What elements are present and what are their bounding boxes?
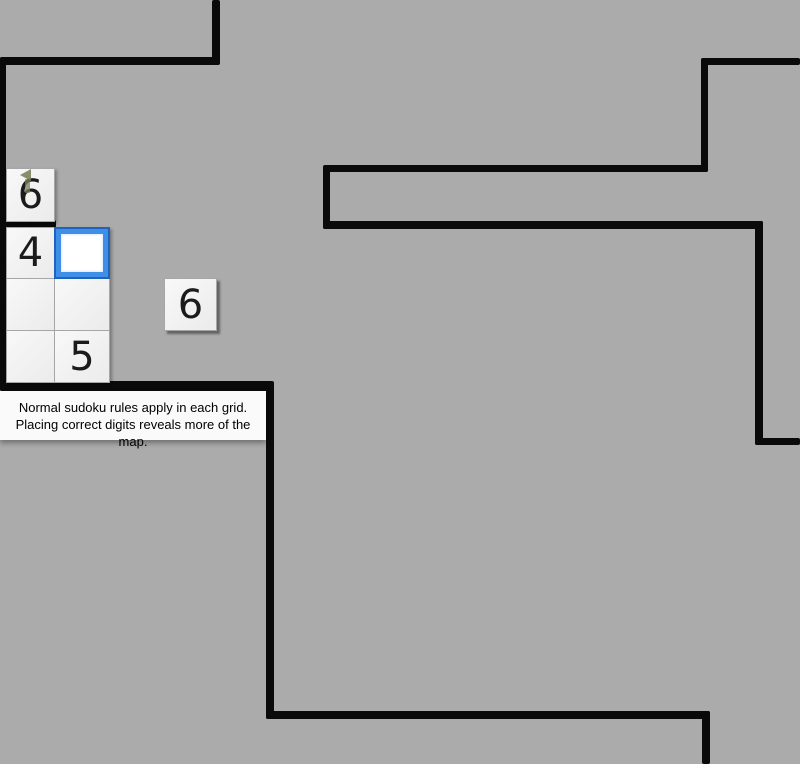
- cell-digit: 6: [178, 285, 203, 325]
- map-wall-top-right-h: [701, 58, 800, 65]
- player-arrow-marker-icon: [20, 169, 31, 193]
- map-background: 6 4 5 6 Normal sudoku rules apply in eac…: [0, 0, 800, 764]
- map-wall-mid-h-upper: [324, 165, 708, 172]
- map-wall-bottom-h: [266, 711, 710, 719]
- map-wall-bottom-right-v: [702, 711, 710, 764]
- map-wall-mid-h-lower: [323, 221, 763, 229]
- sudoku-cell-r2c2[interactable]: [54, 278, 110, 331]
- rules-tooltip-line1: Normal sudoku rules apply in each grid.: [0, 399, 266, 416]
- rules-tooltip-line2: Placing correct digits reveals more of t…: [0, 416, 266, 450]
- cell-digit: 4: [18, 233, 43, 273]
- cell-digit: 5: [69, 337, 94, 377]
- sudoku-cell-r1c1[interactable]: 4: [6, 227, 55, 279]
- marker-stem: [25, 179, 30, 193]
- map-wall-top-left-h: [0, 57, 219, 65]
- map-wall-mid-v-right: [701, 58, 708, 172]
- map-wall-right-h: [755, 438, 800, 445]
- map-wall-right-v: [755, 221, 763, 445]
- sudoku-cell-r2c1[interactable]: [6, 278, 55, 331]
- map-wall-mid-v-left: [323, 165, 330, 229]
- rules-tooltip: Normal sudoku rules apply in each grid. …: [0, 391, 266, 440]
- sudoku-cell-floating[interactable]: 6: [164, 278, 217, 331]
- sudoku-cell-r3c1[interactable]: [6, 330, 55, 383]
- map-wall-tooltip-right-v: [266, 381, 274, 719]
- sudoku-cell-r1c2-selected[interactable]: [54, 227, 110, 279]
- map-wall-top-left-v: [212, 0, 220, 65]
- sudoku-grid: 4 5: [6, 227, 110, 383]
- sudoku-cell-r3c2[interactable]: 5: [54, 330, 110, 383]
